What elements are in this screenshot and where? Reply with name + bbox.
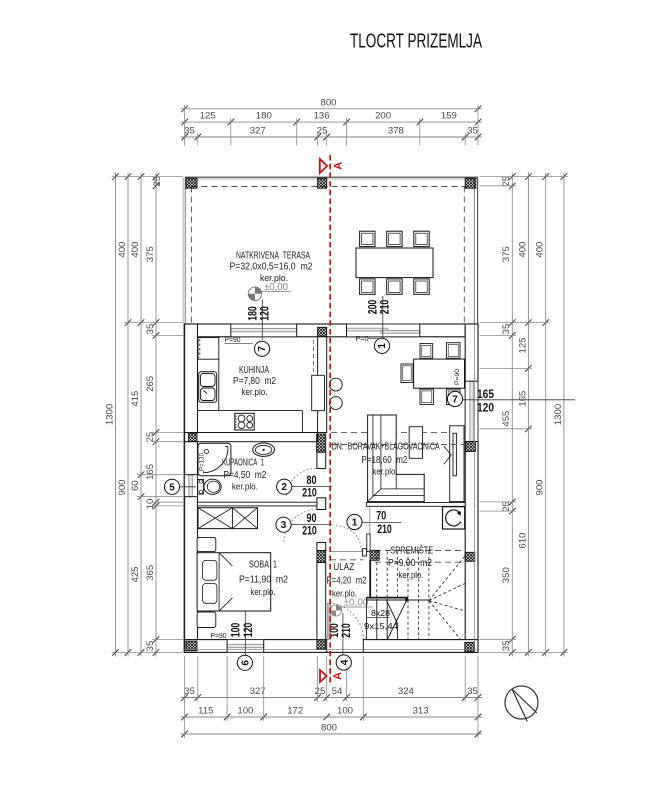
svg-text:35: 35 xyxy=(145,641,156,652)
svg-text:1300: 1300 xyxy=(104,404,115,425)
svg-text:172: 172 xyxy=(287,706,303,717)
svg-text:ker.plo.: ker.plo. xyxy=(232,481,258,492)
svg-text:10: 10 xyxy=(145,499,156,510)
svg-text:ULAZ: ULAZ xyxy=(333,562,354,573)
svg-text:210: 210 xyxy=(380,300,392,315)
svg-text:120: 120 xyxy=(477,401,494,415)
svg-text:25: 25 xyxy=(315,686,326,697)
svg-text:SPREMIŠTE: SPREMIŠTE xyxy=(390,543,433,556)
svg-text:100: 100 xyxy=(230,623,242,638)
svg-text:25: 25 xyxy=(145,432,156,443)
svg-text:365: 365 xyxy=(145,565,156,581)
svg-text:2: 2 xyxy=(281,482,287,493)
svg-text:165: 165 xyxy=(477,387,494,401)
svg-text:P=32,0x0,5=16,0 m2: P=32,0x0,5=16,0 m2 xyxy=(230,262,313,273)
svg-text:136: 136 xyxy=(314,111,330,122)
svg-text:415: 415 xyxy=(130,391,141,407)
svg-text:3: 3 xyxy=(281,520,287,531)
svg-text:P=9,00 m2: P=9,00 m2 xyxy=(388,558,432,569)
svg-text:800: 800 xyxy=(320,97,336,108)
svg-text:100: 100 xyxy=(237,706,253,717)
svg-text:P=4,50 m2: P=4,50 m2 xyxy=(223,470,266,481)
svg-text:900: 900 xyxy=(117,479,128,495)
svg-text:P=11,90 m2: P=11,90 m2 xyxy=(239,575,288,586)
svg-text:DN. BORAVAK+BLAGOVAONICA: DN. BORAVAK+BLAGOVAONICA xyxy=(332,442,440,453)
svg-text:25: 25 xyxy=(317,126,328,137)
svg-text:210: 210 xyxy=(341,623,353,638)
svg-text:35: 35 xyxy=(467,686,478,697)
svg-text:35: 35 xyxy=(501,324,512,335)
svg-text:610: 610 xyxy=(517,533,528,549)
svg-text:425: 425 xyxy=(130,566,141,582)
svg-text:265: 265 xyxy=(145,376,156,392)
svg-text:90: 90 xyxy=(307,513,317,525)
svg-text:375: 375 xyxy=(501,246,512,262)
svg-text:180: 180 xyxy=(247,306,259,321)
svg-text:1: 1 xyxy=(352,518,358,529)
svg-text:7: 7 xyxy=(257,346,268,352)
svg-text:ker.plo.: ker.plo. xyxy=(242,387,268,398)
svg-text:35: 35 xyxy=(184,686,195,697)
svg-text:P=18,60 m2: P=18,60 m2 xyxy=(361,455,407,466)
svg-text:115: 115 xyxy=(198,706,213,717)
svg-text:9x15,44: 9x15,44 xyxy=(364,621,398,631)
svg-text:P=130: P=130 xyxy=(199,453,206,471)
svg-text:100: 100 xyxy=(337,706,353,717)
svg-text:800: 800 xyxy=(321,723,337,734)
svg-text:313: 313 xyxy=(413,706,429,717)
svg-text:25: 25 xyxy=(501,176,512,187)
svg-text:25: 25 xyxy=(501,501,512,512)
svg-text:210: 210 xyxy=(302,488,317,500)
svg-text:327: 327 xyxy=(250,126,266,137)
svg-text:180: 180 xyxy=(256,111,272,122)
svg-text:ker.plo.: ker.plo. xyxy=(373,466,398,477)
svg-text:200: 200 xyxy=(375,111,391,122)
svg-text:165: 165 xyxy=(145,464,156,480)
svg-text:324: 324 xyxy=(398,686,415,697)
svg-text:A: A xyxy=(332,672,344,680)
svg-text:400: 400 xyxy=(517,242,528,258)
svg-text:ker.plo.: ker.plo. xyxy=(399,570,424,581)
svg-text:4: 4 xyxy=(339,659,350,665)
svg-text:200: 200 xyxy=(368,300,380,315)
svg-text:35: 35 xyxy=(467,126,478,137)
svg-text:210: 210 xyxy=(377,524,392,536)
svg-text:P=0: P=0 xyxy=(356,336,369,343)
svg-text:8x28: 8x28 xyxy=(371,608,390,618)
svg-text:P=7,80 m2: P=7,80 m2 xyxy=(233,376,276,387)
svg-text:NATKRIVENA TERASA: NATKRIVENA TERASA xyxy=(236,250,310,261)
svg-text:TLOCRT PRIZEMLJA: TLOCRT PRIZEMLJA xyxy=(350,31,482,53)
svg-text:1: 1 xyxy=(377,343,388,349)
svg-text:6: 6 xyxy=(240,660,251,666)
svg-text:378: 378 xyxy=(388,126,404,137)
svg-text:400: 400 xyxy=(535,242,546,258)
svg-text:SOBA 1: SOBA 1 xyxy=(249,560,277,571)
svg-text:210: 210 xyxy=(302,526,317,538)
svg-text:375: 375 xyxy=(145,246,156,262)
svg-text:455: 455 xyxy=(501,411,512,427)
svg-text:35: 35 xyxy=(501,640,512,651)
svg-text:5: 5 xyxy=(169,482,175,493)
svg-text:KUPAONICA 1: KUPAONICA 1 xyxy=(222,458,264,469)
svg-text:P=90: P=90 xyxy=(211,633,227,640)
svg-text:350: 350 xyxy=(501,567,512,583)
svg-text:25: 25 xyxy=(152,176,163,187)
svg-text:400: 400 xyxy=(117,242,128,258)
svg-text:60: 60 xyxy=(130,480,141,491)
svg-text:KUHINJA: KUHINJA xyxy=(239,365,269,376)
svg-text:54: 54 xyxy=(332,686,343,697)
svg-text:A: A xyxy=(333,162,345,170)
svg-text:159: 159 xyxy=(441,111,457,122)
svg-text:80: 80 xyxy=(307,475,317,487)
svg-text:7: 7 xyxy=(452,395,458,406)
svg-text:70: 70 xyxy=(376,511,386,523)
svg-text:P=90: P=90 xyxy=(454,369,461,385)
svg-text:125: 125 xyxy=(517,337,528,353)
svg-text:35: 35 xyxy=(145,324,156,335)
svg-text:35: 35 xyxy=(184,126,195,137)
svg-text:120: 120 xyxy=(243,623,255,638)
svg-text:120: 120 xyxy=(259,306,271,321)
svg-text:ker.plo.: ker.plo. xyxy=(251,587,276,598)
svg-text:165: 165 xyxy=(517,391,528,407)
svg-text:400: 400 xyxy=(130,242,141,258)
svg-text:125: 125 xyxy=(200,111,216,122)
svg-text:900: 900 xyxy=(535,479,546,495)
svg-text:1300: 1300 xyxy=(553,404,564,425)
svg-text:P=4,20 m2: P=4,20 m2 xyxy=(327,576,367,587)
svg-text:P=90: P=90 xyxy=(225,337,241,344)
